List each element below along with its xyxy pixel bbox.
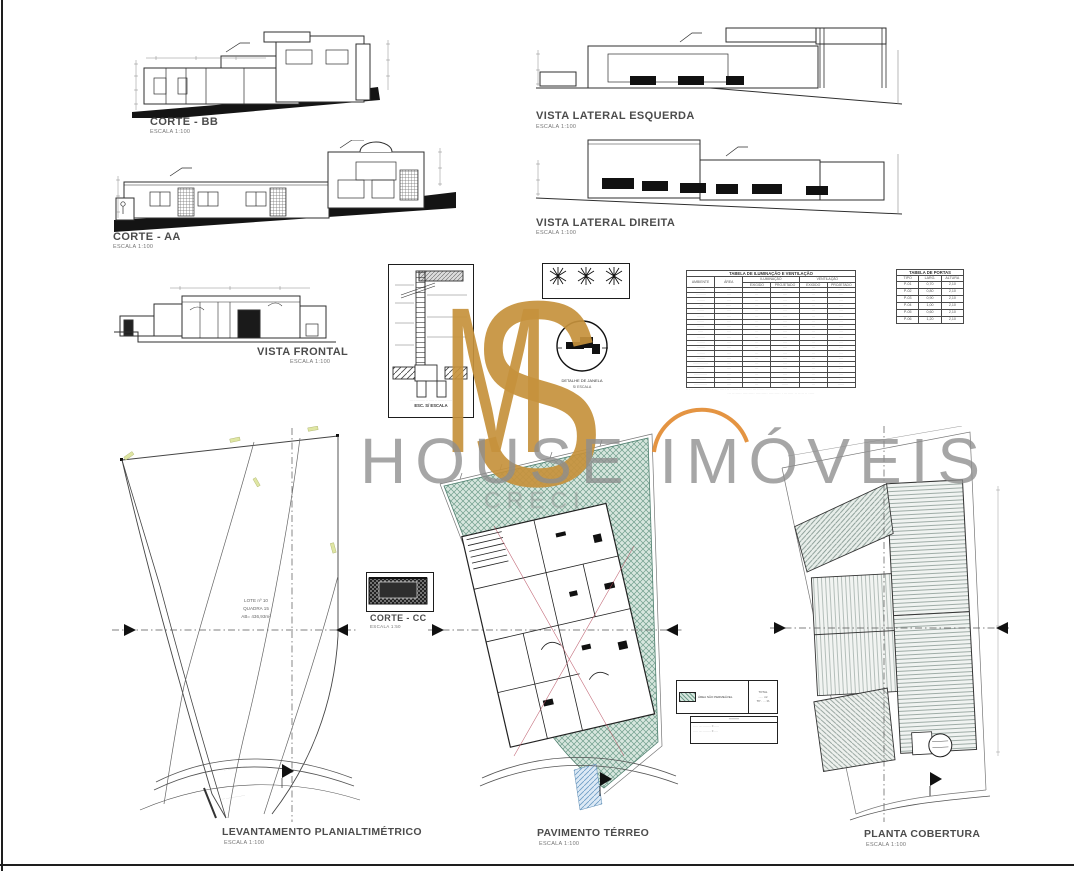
table-row: P-020,802,10	[897, 288, 964, 295]
quadra: QUADRA 15	[243, 606, 269, 611]
areas-box: ·········· ····· ···· ········ = ····· ·…	[690, 716, 778, 744]
lote-number: LOTE nº 10	[244, 598, 268, 603]
architectural-sheet: CORTE - BB ESCALA 1:100	[0, 0, 1074, 871]
corte-bb-title: CORTE - BB	[150, 116, 218, 128]
vle-building	[536, 28, 902, 104]
table-cell: 0,90	[919, 295, 941, 302]
vista-frontal-drawing	[110, 276, 342, 348]
table-cell: 2,10	[941, 288, 963, 295]
vista-lateral-esquerda-drawing	[530, 26, 908, 110]
wall-section-detail-box: ··· ·· ········· ·· ····· ·· ······ ·· ·…	[388, 264, 474, 418]
col-area: ÁREA	[715, 277, 743, 288]
sheet-left-rule	[1, 0, 3, 871]
table-cell: ······	[827, 383, 855, 388]
window-detail-caption2: S/ ESCALA	[573, 385, 592, 389]
table-cell: P-01	[897, 281, 919, 288]
truss-icon	[550, 267, 566, 285]
corte-aa-building	[114, 140, 456, 232]
col-projetado: PROJETADO	[827, 282, 855, 287]
survey-highlights	[124, 426, 336, 553]
vld-title: VISTA LATERAL DIREITA	[536, 217, 675, 229]
table-row: P-050,602,10	[897, 309, 964, 316]
portas-table-wrap: TABELA DE PORTAS TIPO LARG. ALTURA P-010…	[896, 269, 964, 324]
table-cell: 0,60	[919, 309, 941, 316]
levantamento-title: LEVANTAMENTO PLANIALTIMÉTRICO	[222, 826, 422, 838]
areas-box-line: ····· ···· ········ = ····	[691, 728, 777, 733]
truss-caption: ·····	[612, 288, 617, 292]
pavimento-terreo-title: PAVIMENTO TÉRREO	[537, 827, 649, 839]
pavimento-terreo-scale: ESCALA 1:100	[539, 841, 579, 847]
vfrontal-building	[114, 286, 336, 342]
corte-cc-scale: ESCALA 1:50	[370, 624, 401, 629]
vld-building	[536, 140, 902, 214]
vld-scale: ESCALA 1:100	[536, 230, 576, 236]
street-name: ··· ········ ···········	[906, 801, 930, 807]
iluminacao-table-wrap: TABELA DE ILUMINAÇÃO E VENTILAÇÃO AMBIEN…	[686, 270, 856, 396]
planta-cobertura-drawing: ··· ········ ···········	[766, 426, 1016, 824]
corte-aa-drawing	[110, 140, 462, 232]
corte-bb-scale: ESCALA 1:100	[150, 129, 190, 135]
truss-icon	[606, 267, 622, 285]
lote-info: LOTE nº 10 QUADRA 15 AB= 436,93m²	[241, 598, 271, 619]
roof-panels	[793, 480, 978, 773]
table-row: P-061,202,10	[897, 316, 964, 323]
street-name: ··· ········ ···········	[222, 793, 246, 801]
corte-cc-drawing	[367, 573, 430, 608]
table-row: P-010,702,10	[897, 281, 964, 288]
table-cell: 0,80	[919, 288, 941, 295]
col-ambiente: AMBIENTE	[687, 277, 715, 288]
table-cell: 0,70	[919, 281, 941, 288]
table-cell: 2,10	[941, 281, 963, 288]
table-cell: 2,10	[941, 302, 963, 309]
street-name: ··· ········ ···········	[224, 764, 248, 772]
section-marker	[774, 622, 786, 634]
col-projetado: PROJETADO	[771, 282, 799, 287]
table-cell: 2,10	[941, 309, 963, 316]
planta-cobertura-scale: ESCALA 1:100	[866, 842, 906, 848]
pavimento-terreo-drawing	[424, 426, 686, 822]
corte-bb-building	[132, 32, 390, 118]
table-cell: ···	[799, 383, 827, 388]
section-marker	[666, 624, 678, 636]
window-detail-drawing: DETALHE DE JANELA S/ ESCALA	[546, 318, 620, 402]
table-cell: P-04	[897, 302, 919, 309]
section-marker	[124, 624, 136, 636]
wall-detail-caption: ESC. S/ ESCALA	[389, 403, 473, 408]
swatch-label: ÁREA NÃO PERMEÁVEL	[698, 695, 733, 699]
corte-aa-title: CORTE - AA	[113, 231, 181, 243]
section-marker	[432, 624, 444, 636]
truss-symbols-box: ····· ····· ·····	[542, 263, 630, 299]
iluminacao-table: TABELA DE ILUMINAÇÃO E VENTILAÇÃO AMBIEN…	[686, 270, 856, 388]
levantamento-scale: ESCALA 1:100	[224, 840, 264, 846]
vle-scale: ESCALA 1:100	[536, 124, 576, 130]
table-cell: P-02	[897, 288, 919, 295]
table-row: P-030,902,10	[897, 295, 964, 302]
table-cell: P-05	[897, 309, 919, 316]
levantamento-drawing: LOTE nº 10 QUADRA 15 AB= 436,93m² ··· ··…	[104, 426, 366, 828]
table-cell: 1,00	[919, 302, 941, 309]
table-cell: 2,10	[941, 295, 963, 302]
logo-arc	[650, 392, 750, 454]
vista-frontal-title: VISTA FRONTAL	[257, 346, 348, 358]
vista-lateral-direita-drawing	[530, 132, 908, 218]
corte-aa-scale: ESCALA 1:100	[113, 244, 153, 250]
permeable-legend-box: ÁREA NÃO PERMEÁVEL TOTAL ····· m² TP · ·…	[676, 680, 778, 714]
truss-caption: ·····	[555, 288, 560, 292]
portas-table: TABELA DE PORTAS TIPO LARG. ALTURA P-010…	[896, 269, 964, 324]
table-row: P-041,002,10	[897, 302, 964, 309]
table-cell: P-03	[897, 295, 919, 302]
flag-marker	[930, 772, 942, 786]
corte-cc-title: CORTE - CC	[370, 613, 427, 623]
truss-icon	[578, 267, 594, 285]
vista-frontal-scale: ESCALA 1:100	[290, 359, 330, 365]
water-tank	[928, 733, 952, 757]
sheet-bottom-rule	[0, 864, 1074, 866]
vle-title: VISTA LATERAL ESQUERDA	[536, 110, 695, 122]
planta-cobertura-title: PLANTA COBERTURA	[864, 828, 980, 840]
street-curves	[140, 759, 360, 810]
table-cell: 1,20	[919, 316, 941, 323]
corte-bb-drawing	[126, 30, 462, 118]
table-cell: 2,10	[941, 316, 963, 323]
truss-symbols-drawing	[543, 264, 629, 288]
wall-section-detail-drawing	[389, 265, 473, 399]
table-cell: P-06	[897, 316, 919, 323]
lote-area: AB= 436,93m²	[241, 614, 271, 619]
contour-lines	[164, 438, 338, 818]
truss-caption: ·····	[583, 288, 588, 292]
window-detail-caption1: DETALHE DE JANELA	[561, 378, 602, 383]
street-curves	[850, 796, 990, 820]
green-hatch-swatch	[679, 692, 696, 702]
